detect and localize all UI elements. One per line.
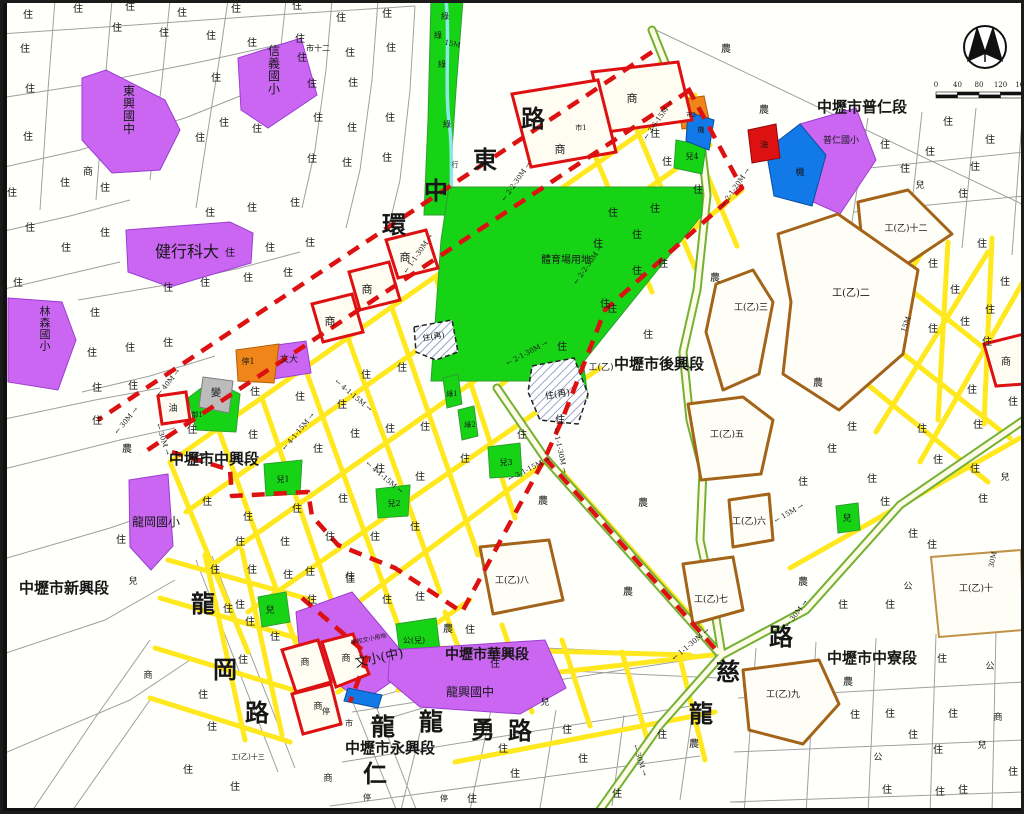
map-label: 行 bbox=[452, 160, 459, 169]
scale-bar-segment bbox=[1001, 95, 1023, 98]
map-label: 住 bbox=[92, 414, 102, 427]
map-label: 住 bbox=[177, 6, 187, 19]
map-label: 住 bbox=[933, 453, 943, 466]
map-label: 住 bbox=[415, 590, 425, 603]
map-label: 綠 bbox=[438, 59, 446, 69]
map-label: 商 bbox=[325, 314, 336, 328]
map-label: 農 bbox=[798, 575, 808, 588]
map-label: 綠 bbox=[443, 119, 451, 129]
map-label: 住 bbox=[658, 257, 668, 270]
map-label: 住 bbox=[385, 111, 395, 124]
map-label: 仁 bbox=[363, 759, 387, 788]
map-label: 變 bbox=[211, 386, 221, 399]
map-label: 住 bbox=[219, 116, 229, 129]
map-label: 龍 bbox=[419, 707, 443, 736]
map-label: 住 bbox=[600, 297, 610, 310]
map-label: 工(乙)五 bbox=[710, 429, 744, 440]
map-label: 綠 bbox=[434, 30, 442, 40]
map-canvas: 中壢市普仁段中壢市後興段中壢市中興段中壢市新興段中壢市華興段中壢市永興段中壢市中… bbox=[0, 0, 1024, 814]
map-label: 住 bbox=[252, 122, 262, 135]
map-label: 商 bbox=[993, 711, 1002, 723]
map-label: 商 bbox=[143, 669, 152, 681]
map-label: 農 bbox=[710, 271, 720, 284]
map-label: 住 bbox=[361, 368, 371, 381]
map-label: 住 bbox=[159, 26, 169, 39]
map-label: 農 bbox=[759, 103, 769, 116]
map-label: 住 bbox=[348, 76, 358, 89]
map-label: 住 bbox=[985, 133, 995, 146]
map-label: 住 bbox=[345, 46, 355, 59]
map-label: 住 bbox=[948, 707, 958, 720]
map-label: 住 bbox=[230, 780, 240, 793]
zoning-map-page: 中壢市普仁段中壢市後興段中壢市中興段中壢市新興段中壢市華興段中壢市永興段中壢市中… bbox=[0, 0, 1024, 814]
map-label: 住 bbox=[25, 82, 35, 95]
scale-bar-segment bbox=[958, 95, 980, 98]
map-label: 住 bbox=[933, 743, 943, 756]
map-label: 住 bbox=[882, 783, 892, 796]
map-label: 路 bbox=[508, 716, 533, 745]
map-label: 兒 bbox=[977, 739, 986, 751]
map-label: 住 bbox=[927, 538, 937, 551]
map-label: 農 bbox=[623, 585, 633, 598]
map-label: 住 bbox=[917, 422, 927, 435]
map-label: 工(乙)三 bbox=[734, 302, 768, 313]
map-label: 住 bbox=[970, 160, 980, 173]
map-label: 農 bbox=[443, 622, 453, 635]
map-label: 住 bbox=[632, 228, 642, 241]
map-label: 住 bbox=[490, 657, 500, 670]
map-label: 中 bbox=[424, 176, 448, 205]
map-label: 住 bbox=[850, 708, 860, 721]
map-label: 住 bbox=[20, 42, 30, 55]
map-label: 住 bbox=[650, 127, 660, 140]
map-label: 住 bbox=[295, 390, 305, 403]
map-label: 兒3 bbox=[499, 457, 512, 467]
map-label: 中壢市中寮段 bbox=[827, 649, 917, 667]
map-label: 住 bbox=[163, 336, 173, 349]
map-label: 住 bbox=[650, 202, 660, 215]
map-label: 住 bbox=[250, 385, 260, 398]
north-arrow-icon bbox=[964, 26, 1006, 68]
map-label: 住 bbox=[342, 156, 352, 169]
map-label: 機 bbox=[795, 166, 804, 178]
scale-bar-segment bbox=[979, 95, 1001, 98]
map-label: 龍 bbox=[371, 712, 395, 741]
map-label: 中壢市普仁段 bbox=[817, 98, 907, 116]
map-label: 工(乙)九 bbox=[766, 689, 800, 700]
map-label: 工(乙)八 bbox=[495, 575, 529, 586]
map-label: 住 bbox=[248, 428, 258, 441]
map-label: 農 bbox=[538, 494, 548, 507]
map-label: 兒 bbox=[842, 512, 851, 524]
map-label: 農 bbox=[638, 496, 648, 509]
map-label: 龍 bbox=[689, 699, 713, 728]
map-label: 工(乙)十三 bbox=[231, 752, 264, 761]
map-label: 龍岡國小 bbox=[132, 514, 180, 529]
map-label: 住 bbox=[382, 151, 392, 164]
map-label: 油 bbox=[168, 402, 177, 414]
map-label: 住 bbox=[25, 221, 35, 234]
map-label: 住 bbox=[967, 383, 977, 396]
map-label: 住 bbox=[325, 530, 335, 543]
map-label: 住 bbox=[92, 381, 102, 394]
map-label: 住 bbox=[943, 115, 953, 128]
map-label: 兒 bbox=[128, 575, 137, 587]
map-label: 住 bbox=[245, 615, 255, 628]
map-label: 住 bbox=[60, 176, 70, 189]
map-label: 住 bbox=[498, 742, 508, 755]
map-label: 住 bbox=[885, 598, 895, 611]
map-label: 東興國中 bbox=[123, 84, 135, 136]
map-label: 工(乙)二 bbox=[832, 287, 870, 299]
map-label: 住 bbox=[657, 728, 667, 741]
map-label: 住 bbox=[116, 533, 126, 546]
map-label: 住 bbox=[460, 452, 470, 465]
map-label: 市1 bbox=[575, 123, 586, 132]
map-label: 公 bbox=[985, 661, 994, 672]
map-label: 住 bbox=[100, 226, 110, 239]
map-label: 農 bbox=[813, 376, 823, 389]
map-label: 龍興國中 bbox=[446, 684, 494, 699]
map-label: 住 bbox=[410, 520, 420, 533]
map-label: 住 bbox=[632, 264, 642, 277]
map-label: 農 bbox=[843, 675, 853, 688]
map-label: 住 bbox=[1008, 395, 1018, 408]
map-label: 東 bbox=[473, 145, 497, 174]
map-label: 工(乙)六 bbox=[732, 515, 766, 527]
map-label: 油 bbox=[760, 139, 768, 149]
map-label: 住 bbox=[908, 527, 918, 540]
map-label: 停 bbox=[363, 792, 371, 802]
map-label: 住 bbox=[693, 183, 703, 196]
map-label: 商 bbox=[362, 282, 373, 296]
map-label: 住 bbox=[292, 502, 302, 515]
map-label: 公 bbox=[903, 581, 912, 592]
map-label: 工(乙)十 bbox=[959, 582, 993, 594]
map-label: 住 bbox=[187, 423, 197, 436]
map-label: 工(乙)七 bbox=[694, 594, 728, 605]
map-label: 住 bbox=[928, 322, 938, 335]
map-label: 住 bbox=[200, 276, 210, 289]
map-label: 住 bbox=[336, 11, 346, 24]
scale-bar-segment bbox=[936, 92, 958, 95]
map-label: 住 bbox=[420, 420, 430, 433]
map-label: 商 bbox=[83, 165, 93, 178]
map-label: 環 bbox=[382, 210, 407, 239]
map-label: 住 bbox=[415, 470, 425, 483]
map-label: 商 bbox=[341, 652, 350, 664]
map-label: 住 bbox=[1000, 275, 1010, 288]
map-label: 住 bbox=[247, 201, 257, 214]
map-label: 住 bbox=[337, 398, 347, 411]
scale-tick-label: 0 bbox=[934, 81, 938, 89]
map-label: 住 bbox=[283, 568, 293, 581]
map-label: 住 bbox=[557, 340, 567, 353]
map-label: 商 bbox=[300, 656, 309, 668]
map-label: 住 bbox=[112, 21, 122, 34]
map-label: 慈 bbox=[716, 657, 740, 686]
map-label: 住 bbox=[925, 145, 935, 158]
map-label: 市 bbox=[345, 718, 353, 728]
map-label: 住 bbox=[838, 598, 848, 611]
map-label: 中壢市中興段 bbox=[169, 450, 259, 468]
map-label: 住 bbox=[87, 346, 97, 359]
map-label: 住 bbox=[23, 130, 33, 143]
map-label: 住 bbox=[305, 565, 315, 578]
map-label: 信義國小 bbox=[268, 44, 280, 96]
map-label: 住 bbox=[270, 630, 280, 643]
map-label: 機 bbox=[698, 125, 705, 134]
map-label: 住 bbox=[73, 2, 83, 15]
map-label: 住 bbox=[382, 593, 392, 606]
map-label: 住 bbox=[593, 237, 603, 250]
map-label: 住 bbox=[612, 787, 622, 800]
map-label: 停 bbox=[440, 793, 448, 803]
map-label: 住 bbox=[345, 570, 355, 583]
map-label: 住 bbox=[555, 413, 565, 426]
map-label: 住 bbox=[928, 257, 938, 270]
map-label: 住 bbox=[305, 236, 315, 249]
map-label: 住 bbox=[247, 563, 257, 576]
map-label: 農 bbox=[689, 737, 699, 750]
map-label: 商 bbox=[627, 91, 638, 105]
map-label: 綠1 bbox=[446, 389, 457, 398]
map-label: 住 bbox=[280, 535, 290, 548]
map-label: 住 bbox=[517, 428, 527, 441]
map-label: 住 bbox=[950, 283, 960, 296]
map-label: 鄰1 bbox=[191, 410, 202, 419]
map-label: 中壢市新興段 bbox=[19, 579, 109, 597]
map-label: 商 bbox=[313, 700, 322, 712]
map-label: 住 bbox=[307, 152, 317, 165]
map-label: 住 bbox=[265, 241, 275, 254]
map-label: 商 bbox=[1001, 355, 1011, 368]
map-label: 中壢市永興段 bbox=[345, 739, 435, 757]
map-label: 住 bbox=[313, 111, 323, 124]
map-label: 住 bbox=[90, 306, 100, 319]
map-label: 住 bbox=[985, 303, 995, 316]
map-label: 住 bbox=[608, 206, 618, 219]
map-label: 住 bbox=[958, 783, 968, 796]
map-label: 商 bbox=[323, 772, 332, 784]
map-label: 住 bbox=[313, 442, 323, 455]
scale-tick-label: 80 bbox=[975, 81, 984, 89]
map-label: 住 bbox=[867, 472, 877, 485]
map-label: 住 bbox=[350, 427, 360, 440]
map-label: 文大 bbox=[280, 353, 298, 365]
map-label: 住 bbox=[970, 462, 980, 475]
map-label: 住 bbox=[23, 8, 33, 21]
map-label: 兒1 bbox=[276, 474, 289, 484]
map-label: 公 bbox=[873, 752, 882, 763]
map-label: 工(乙)十二 bbox=[884, 222, 927, 234]
map-label: 住 bbox=[662, 155, 672, 168]
map-label: 龍 bbox=[191, 589, 215, 618]
map-label: 住 bbox=[982, 335, 992, 348]
map-label: 兒 bbox=[540, 696, 549, 708]
map-label: 住 bbox=[297, 51, 307, 64]
scale-bar-segment bbox=[958, 92, 980, 95]
map-label: 住 bbox=[880, 138, 890, 151]
map-label: 住 bbox=[467, 792, 477, 805]
map-label: 住 bbox=[307, 77, 317, 90]
map-label: 路 bbox=[521, 104, 546, 133]
map-label: 兒 bbox=[1000, 471, 1009, 483]
map-label: 住 bbox=[978, 492, 988, 505]
map-label: 兒2 bbox=[387, 498, 400, 508]
map-label: 住 bbox=[958, 187, 968, 200]
map-label: 住 bbox=[397, 361, 407, 374]
map-label: 住 bbox=[510, 767, 520, 780]
map-label: 停1 bbox=[241, 356, 254, 366]
map-label: 住 bbox=[202, 495, 212, 508]
map-label: 住 bbox=[7, 186, 17, 199]
map-label: 農 bbox=[122, 442, 132, 455]
map-label: 住 bbox=[207, 720, 217, 733]
scale-tick-label: 120 bbox=[994, 81, 1007, 89]
map-label: 住 bbox=[183, 763, 193, 776]
map-label: 市2 bbox=[686, 111, 696, 119]
map-label: 住 bbox=[937, 652, 947, 665]
map-label: 住 bbox=[385, 422, 395, 435]
map-label: 住 bbox=[307, 593, 317, 606]
map-label: 住 bbox=[243, 271, 253, 284]
map-label: 住 bbox=[338, 492, 348, 505]
scale-bar-segment bbox=[979, 92, 1001, 95]
map-label: 中壢市華興段 bbox=[445, 646, 529, 663]
map-label: 工(乙) bbox=[588, 362, 613, 373]
scale-bar-segment bbox=[1001, 92, 1023, 95]
map-label: 住 bbox=[465, 623, 475, 636]
map-label: 住 bbox=[247, 36, 257, 49]
map-label: 住 bbox=[235, 535, 245, 548]
map-label: 住 bbox=[798, 475, 808, 488]
map-label: 公(兒) bbox=[403, 635, 425, 645]
map-label: 勇 bbox=[471, 715, 495, 744]
map-label: 中壢市後興段 bbox=[614, 355, 704, 373]
map-label: 住 bbox=[375, 462, 385, 475]
map-label: 住 bbox=[880, 495, 890, 508]
map-label: 住 bbox=[231, 2, 241, 15]
map-label: 住 bbox=[211, 71, 221, 84]
map-label: 住 bbox=[198, 688, 208, 701]
map-label: 住 bbox=[206, 29, 216, 42]
map-label: 住 bbox=[562, 723, 572, 736]
map-label: 住 bbox=[382, 7, 392, 20]
map-label: 住 bbox=[386, 41, 396, 54]
map-label: 住 bbox=[908, 728, 918, 741]
map-label: 住 bbox=[205, 206, 215, 219]
map-label: 住 bbox=[370, 530, 380, 543]
map-label: 住 bbox=[578, 752, 588, 765]
map-label: 住 bbox=[1008, 765, 1018, 778]
map-label: 住 bbox=[973, 418, 983, 431]
map-label: 住 bbox=[885, 707, 895, 720]
map-label: 住 bbox=[827, 442, 837, 455]
map-label: 住 bbox=[643, 328, 653, 341]
map-label: 普仁國小 bbox=[823, 134, 859, 146]
map-label: 住 bbox=[195, 131, 205, 144]
map-label: 住 bbox=[238, 653, 248, 666]
map-label: 住 bbox=[900, 162, 910, 175]
map-label: 市十二 bbox=[306, 43, 330, 53]
map-label: 住 bbox=[295, 32, 305, 45]
map-label: 住 bbox=[977, 237, 987, 250]
map-label: 綠 bbox=[441, 11, 449, 21]
map-label: 商 bbox=[555, 142, 566, 156]
map-label: 停 bbox=[322, 706, 330, 716]
map-label: 農 bbox=[721, 42, 731, 55]
map-label: 住 bbox=[960, 315, 970, 328]
map-label: 住 bbox=[225, 246, 235, 259]
scale-tick-label: 40 bbox=[953, 81, 962, 89]
map-label: 住 bbox=[195, 452, 205, 465]
map-label: 岡 bbox=[213, 655, 237, 684]
map-label: 綠2 bbox=[464, 420, 475, 429]
map-label: 住 bbox=[223, 602, 233, 615]
map-label: 住 bbox=[13, 276, 23, 289]
map-label: 住 bbox=[163, 281, 173, 294]
map-label: 住 bbox=[61, 241, 71, 254]
map-label: 住 bbox=[847, 420, 857, 433]
map-label: 住 bbox=[235, 598, 245, 611]
scale-bar-segment bbox=[936, 95, 958, 98]
map-label: 兒4 bbox=[685, 151, 698, 161]
map-label: 住 bbox=[100, 181, 110, 194]
map-label: 住 bbox=[128, 379, 138, 392]
map-label: 住 bbox=[210, 563, 220, 576]
map-label: 住 bbox=[283, 266, 293, 279]
map-label: 兒 bbox=[915, 179, 924, 191]
map-label: 兒 bbox=[265, 604, 274, 616]
map-label: 住 bbox=[935, 785, 945, 798]
map-label: 健行科大 bbox=[155, 242, 219, 261]
map-label: 住 bbox=[125, 341, 135, 354]
map-label: 住 bbox=[347, 121, 357, 134]
map-label: 路 bbox=[245, 698, 270, 727]
map-label: 住 bbox=[243, 510, 253, 523]
map-label: 林森國小 bbox=[40, 304, 51, 353]
map-label: 住 bbox=[290, 196, 300, 209]
